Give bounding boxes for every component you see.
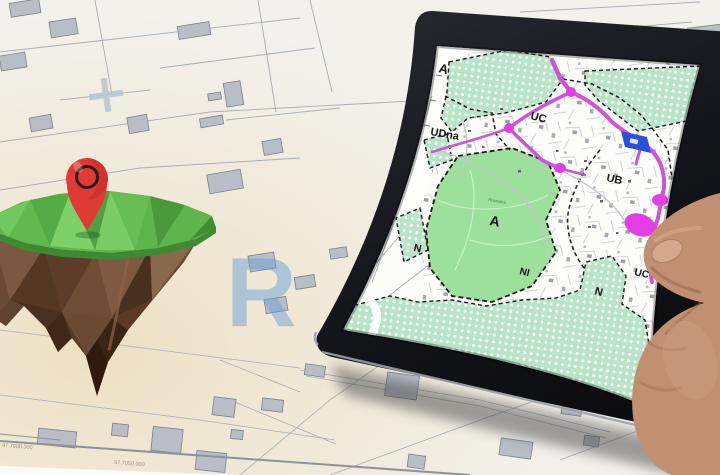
scene: 97.7900.000 97.7050.000 R <box>0 0 720 475</box>
watermark-letter: R <box>226 237 297 347</box>
pin-shadow <box>75 232 101 239</box>
photo-composite: 97.7900.000 97.7050.000 R <box>0 0 720 475</box>
